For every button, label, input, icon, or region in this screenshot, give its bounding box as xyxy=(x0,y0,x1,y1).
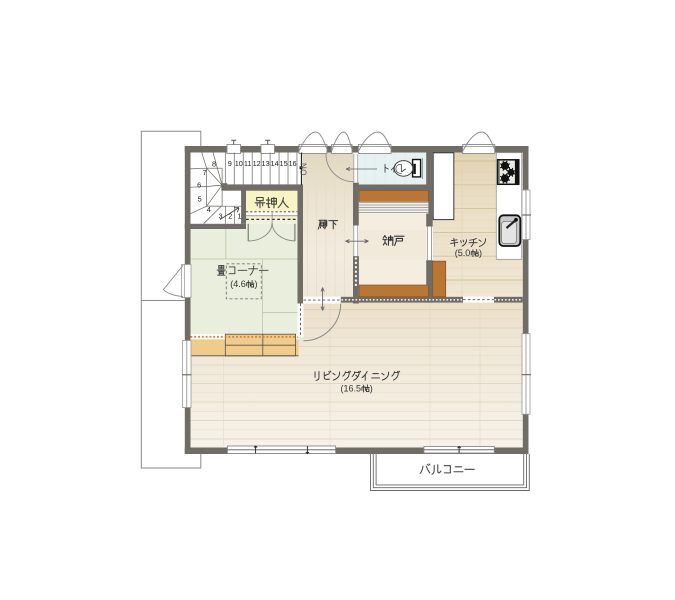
svg-text:ON: ON xyxy=(300,163,309,176)
svg-text:8: 8 xyxy=(212,160,216,169)
svg-text:10: 10 xyxy=(235,159,243,168)
svg-text:5: 5 xyxy=(198,195,202,204)
svg-text:11: 11 xyxy=(244,159,252,168)
svg-text:7: 7 xyxy=(203,168,207,177)
svg-text:9: 9 xyxy=(228,159,232,168)
svg-text:13: 13 xyxy=(262,159,270,168)
svg-text:12: 12 xyxy=(253,159,261,168)
svg-text:15: 15 xyxy=(280,159,288,168)
svg-text:4: 4 xyxy=(207,205,211,214)
svg-text:6: 6 xyxy=(197,180,201,189)
svg-text:): ) xyxy=(479,248,482,258)
svg-text:): ) xyxy=(255,279,258,289)
svg-text:14: 14 xyxy=(271,159,279,168)
svg-text:): ) xyxy=(370,384,373,394)
svg-text:16: 16 xyxy=(288,159,296,168)
svg-text:(16.5: (16.5 xyxy=(340,384,361,394)
svg-text:(4.6: (4.6 xyxy=(230,279,246,289)
svg-text:(5.0: (5.0 xyxy=(455,248,471,258)
svg-text:1: 1 xyxy=(237,212,241,221)
